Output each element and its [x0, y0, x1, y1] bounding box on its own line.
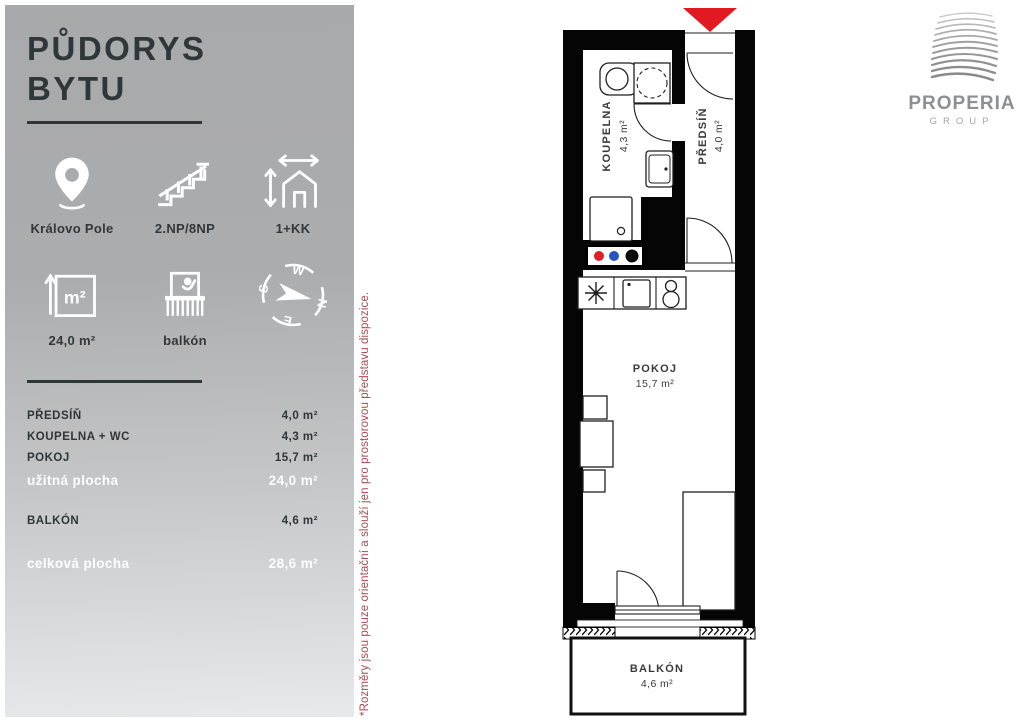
bed — [683, 492, 735, 610]
kitchen-counter — [578, 277, 686, 309]
room-area-pokoj: 15,7 m² — [636, 378, 674, 390]
room-area-predsin: 4,0 m² — [713, 120, 725, 152]
room-area-koupelna: 4,3 m² — [618, 120, 630, 152]
shower-tray — [590, 197, 632, 241]
washer-hookup — [587, 246, 643, 266]
bathroom-door — [634, 104, 671, 141]
entrance-door — [685, 33, 735, 99]
room-door — [685, 218, 735, 271]
floor-plan: KOUPELNA 4,3 m² PŘEDSÍŇ 4,0 m² POKOJ 15,… — [0, 0, 1024, 724]
entrance-arrow — [683, 8, 737, 32]
shower — [634, 63, 670, 103]
chair — [583, 470, 605, 492]
room-area-balkon: 4,6 m² — [641, 678, 673, 690]
chair — [583, 396, 607, 419]
room-label-pokoj: POKOJ — [633, 363, 678, 375]
room-label-predsin: PŘEDSÍŇ — [696, 107, 709, 164]
toilet-bowl — [606, 68, 628, 90]
balcony-outline — [571, 638, 745, 714]
kitchen-sink — [623, 280, 650, 307]
page: PŮDORYS BYTU Královo Pole — [0, 0, 1024, 724]
bathroom-sink — [646, 151, 673, 187]
room-label-koupelna: KOUPELNA — [601, 100, 613, 171]
table — [580, 421, 613, 467]
room-label-balkon: BALKÓN — [630, 662, 684, 675]
